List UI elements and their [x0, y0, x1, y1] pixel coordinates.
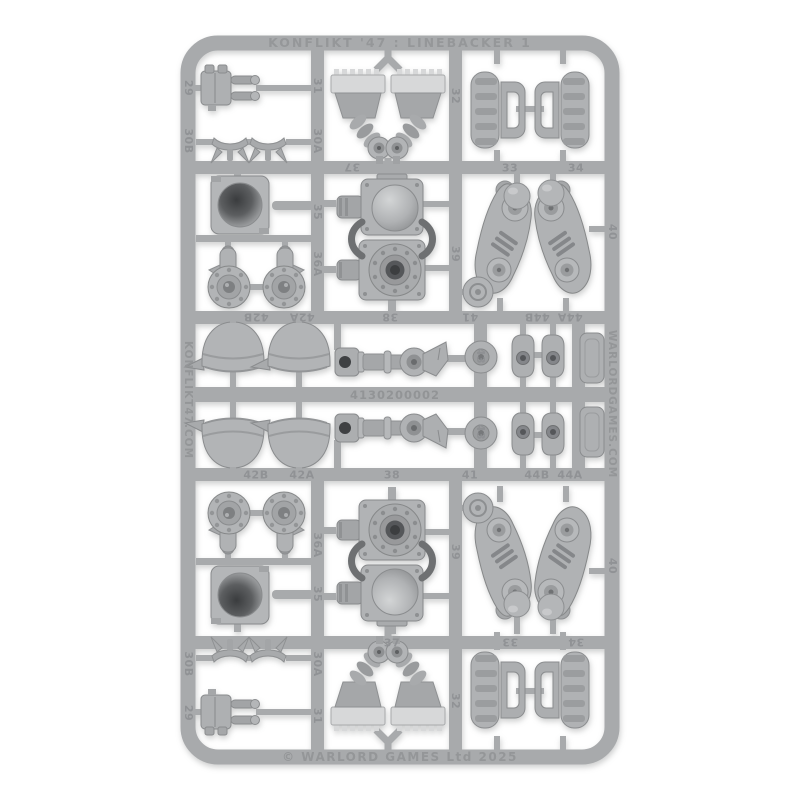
mold-code: 4130200002: [350, 388, 440, 402]
label-41: 41: [462, 469, 478, 482]
label-44A: 44A: [557, 469, 582, 482]
label-30A: 30A: [311, 651, 324, 676]
label-43: 43: [474, 348, 487, 364]
sprue-photo: KONFLIKT '47 : LINEBACKER 1 © WARLORD GA…: [0, 0, 800, 800]
label-44B: 44B: [524, 469, 549, 482]
sprue-bottom-half: [194, 486, 605, 752]
label-39: 39: [449, 544, 462, 560]
label-43: 43: [474, 424, 487, 440]
label-30B: 30B: [182, 651, 195, 676]
label-37: 37: [384, 637, 400, 650]
label-38: 38: [384, 469, 400, 482]
label-42B: 42B: [243, 311, 268, 324]
label-35: 35: [311, 586, 324, 602]
label-30B: 30B: [182, 128, 195, 153]
label-44B: 44B: [524, 311, 549, 324]
right-rail-url: WARLORDGAMES.COM: [606, 330, 618, 478]
left-rail-url: KONFLIKT47.COM: [182, 341, 194, 459]
label-29: 29: [182, 80, 195, 96]
label-38: 38: [382, 311, 398, 324]
rail-v2-bottom: [449, 474, 462, 754]
sprue-top-half: [194, 48, 605, 314]
label-44A: 44A: [557, 311, 582, 324]
sprue-svg: KONFLIKT '47 : LINEBACKER 1 © WARLORD GA…: [0, 0, 800, 800]
label-40: 40: [606, 224, 619, 240]
label-32: 32: [449, 88, 462, 104]
sprue-title: KONFLIKT '47 : LINEBACKER 1: [268, 35, 532, 50]
label-33: 33: [502, 636, 518, 649]
label-39: 39: [449, 246, 462, 262]
label-40: 40: [606, 558, 619, 574]
label-29: 29: [182, 705, 195, 721]
label-41: 41: [462, 311, 478, 324]
label-36A: 36A: [311, 251, 324, 276]
label-42B: 42B: [243, 469, 268, 482]
label-31: 31: [311, 708, 324, 724]
label-31: 31: [311, 78, 324, 94]
sprue-row3: [185, 315, 614, 389]
label-42A: 42A: [289, 469, 314, 482]
sprue-row4: [185, 401, 614, 475]
label-32: 32: [449, 693, 462, 709]
label-34: 34: [568, 636, 584, 649]
label-34: 34: [568, 162, 584, 175]
label-30A: 30A: [311, 128, 324, 153]
label-42A: 42A: [289, 311, 314, 324]
label-33: 33: [502, 162, 518, 175]
label-36A: 36A: [311, 532, 324, 557]
sprue-copyright: © WARLORD GAMES Ltd 2025: [282, 750, 518, 764]
label-37: 37: [344, 161, 360, 174]
label-35: 35: [311, 204, 324, 220]
